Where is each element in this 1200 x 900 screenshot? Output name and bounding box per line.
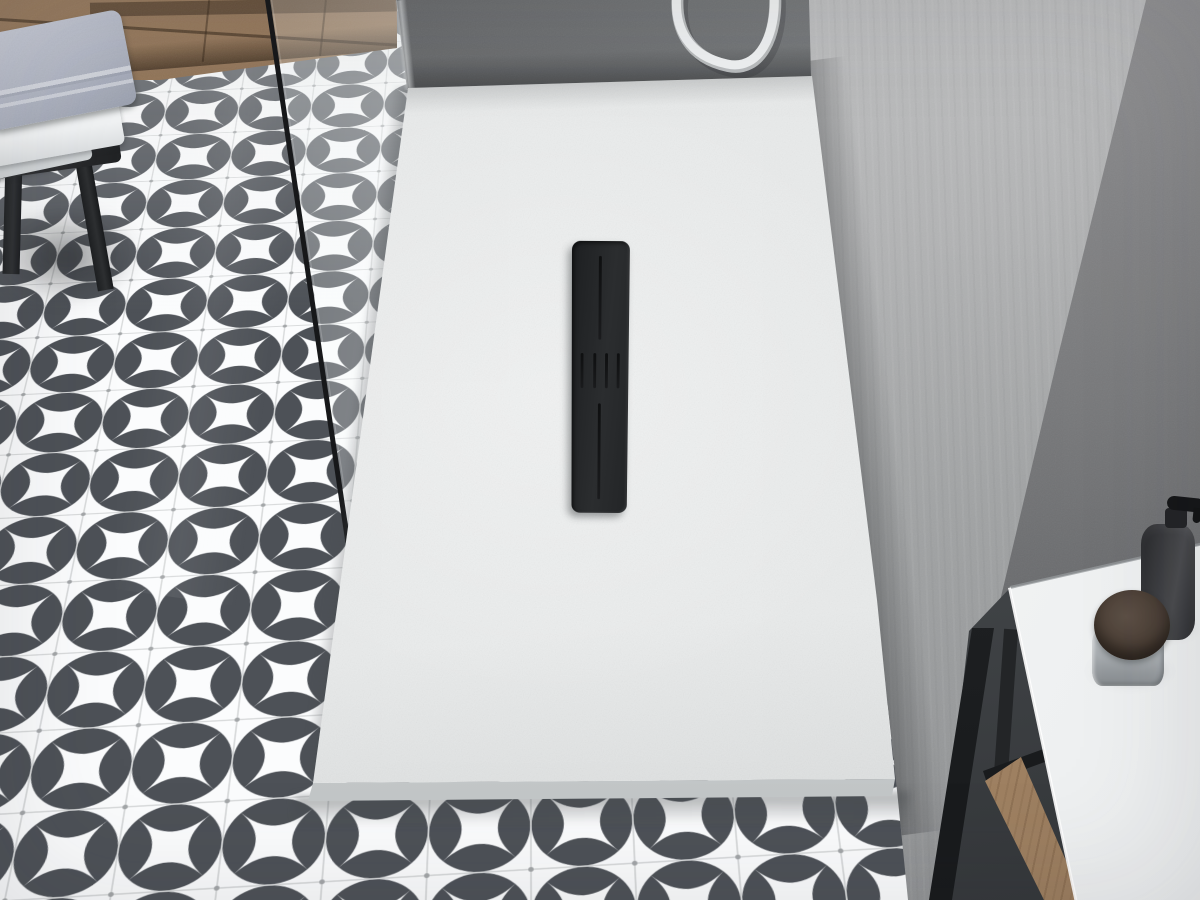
drain-slot-long [598,256,602,340]
drain-slot-short [617,353,620,388]
soap-pump-spout [1192,508,1200,524]
drain-slot-long [597,403,601,499]
drain-slot-short [605,353,608,388]
linear-drain-cover [571,241,630,513]
drain-slot-short [593,353,596,388]
bathroom-scene [0,0,1200,900]
drain-slot-short [580,353,583,388]
jar-wooden-lid [1094,590,1170,660]
